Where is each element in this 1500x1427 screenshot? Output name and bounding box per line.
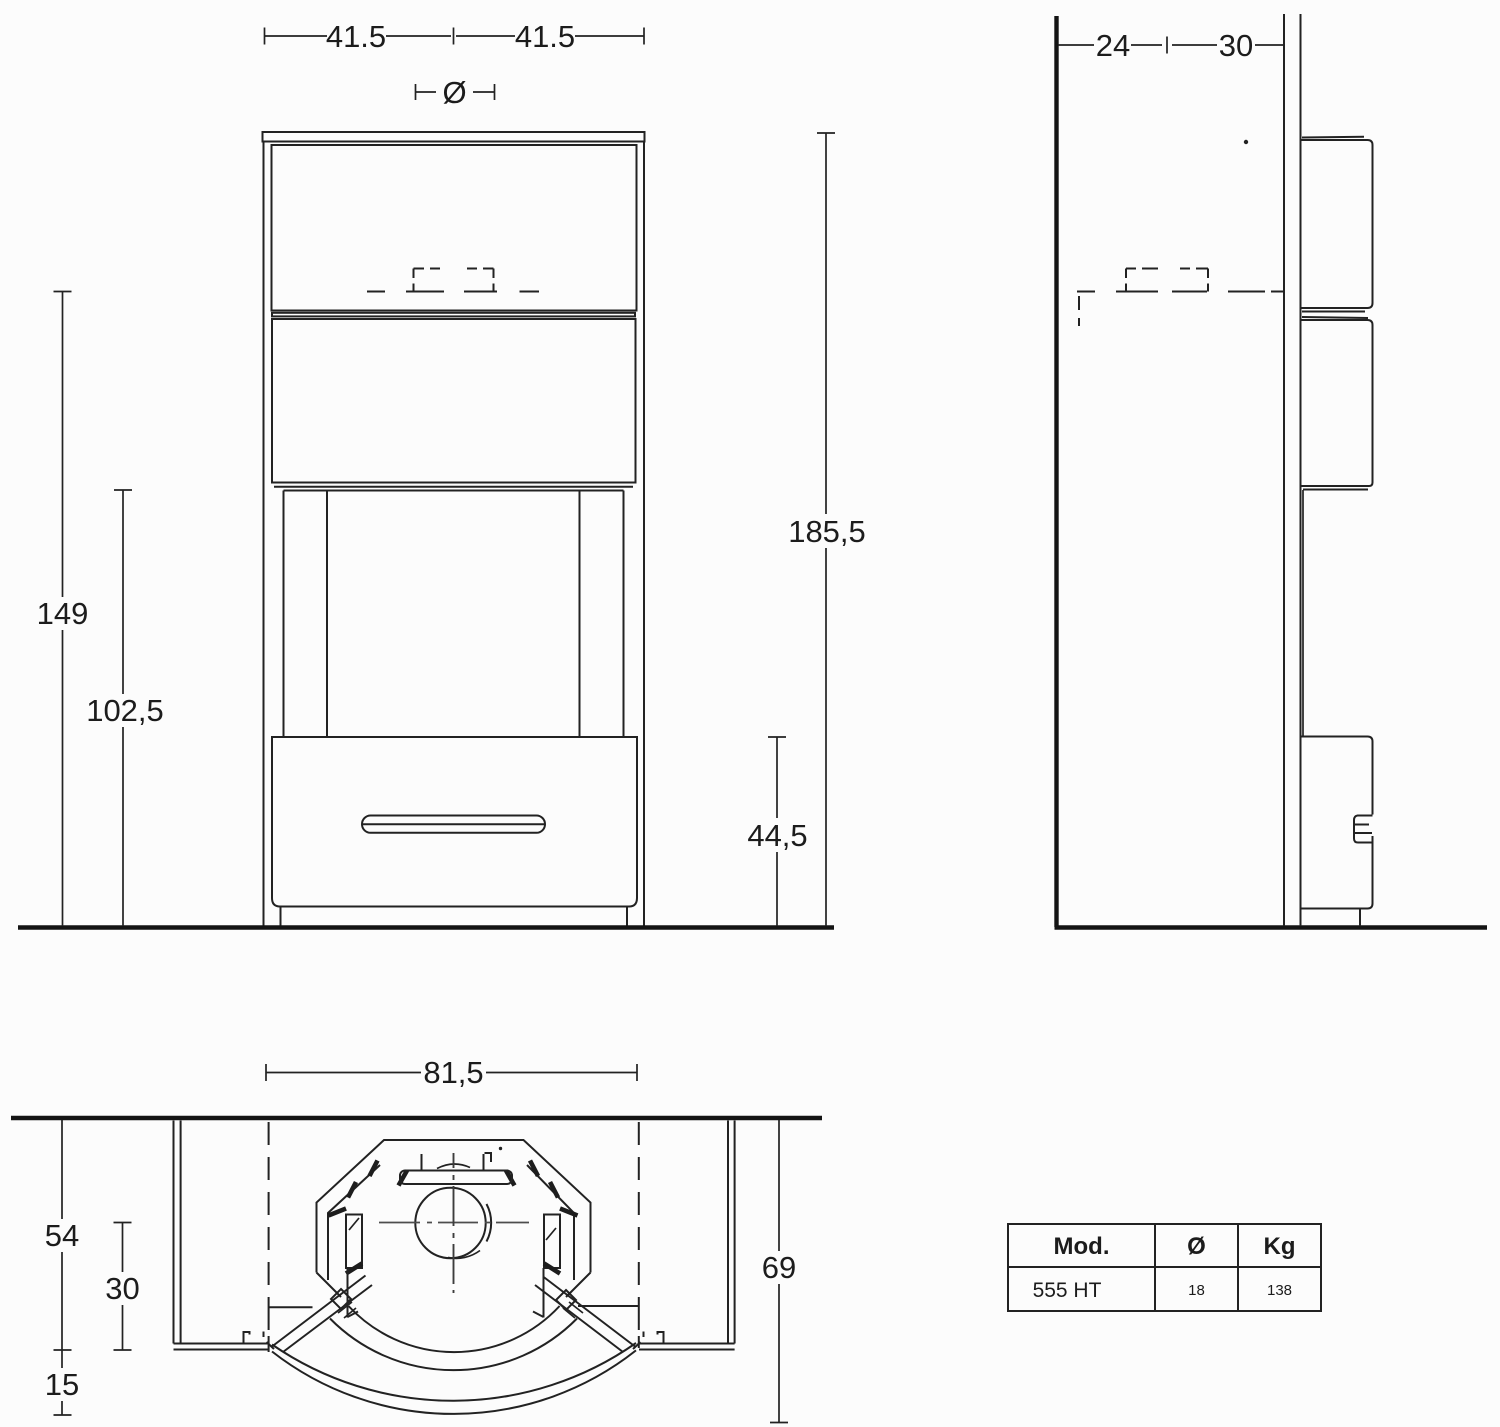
svg-text:30: 30 (105, 1271, 139, 1306)
svg-text:18: 18 (1188, 1282, 1205, 1299)
svg-text:30: 30 (1219, 28, 1253, 63)
svg-text:Kg: Kg (1264, 1233, 1296, 1260)
svg-text:Ø: Ø (442, 75, 466, 110)
svg-text:Mod.: Mod. (1054, 1233, 1110, 1260)
svg-text:149: 149 (37, 596, 89, 631)
svg-text:15: 15 (45, 1367, 79, 1402)
svg-text:185,5: 185,5 (788, 514, 866, 549)
svg-text:69: 69 (762, 1250, 796, 1285)
svg-text:44,5: 44,5 (747, 818, 807, 853)
svg-text:102,5: 102,5 (86, 693, 164, 728)
svg-text:41.5: 41.5 (326, 19, 386, 54)
svg-text:81,5: 81,5 (423, 1055, 483, 1090)
svg-text:555 HT: 555 HT (1033, 1279, 1102, 1302)
svg-text:41.5: 41.5 (515, 19, 575, 54)
svg-text:138: 138 (1267, 1282, 1292, 1299)
svg-text:24: 24 (1096, 28, 1130, 63)
svg-text:54: 54 (45, 1218, 79, 1253)
svg-text:Ø: Ø (1187, 1233, 1206, 1260)
